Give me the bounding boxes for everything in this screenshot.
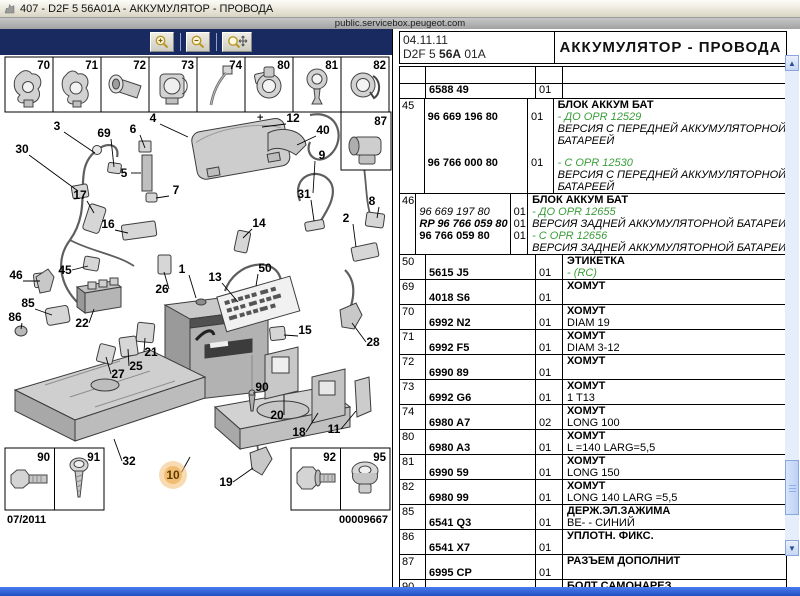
qty-cell: 01	[536, 305, 563, 329]
top-cell-number-80: 80	[277, 60, 290, 72]
plus-terminal-mark: +	[257, 112, 263, 124]
part-cell: 6541 Q3	[426, 505, 536, 529]
ref-cell: 81	[400, 455, 426, 479]
callout-32[interactable]: 32	[122, 454, 136, 468]
top-cell-number-74: 74	[229, 60, 242, 72]
top-cell-number-70: 70	[37, 60, 50, 72]
ref-cell: 73	[400, 380, 426, 404]
table-row[interactable]: 6588 4901	[400, 84, 786, 99]
qty-cell	[536, 67, 563, 83]
table-row[interactable]: 85 6541 Q3 01ДЕРЖ.ЭЛ.ЗАЖИМАBE- - СИНИЙ	[400, 505, 786, 530]
ref-cell: 85	[400, 505, 426, 529]
qty-cell: 01	[536, 455, 563, 479]
desc-cell: ХОМУТ	[563, 280, 786, 304]
diagram-canvas[interactable]: +	[0, 55, 392, 587]
zoom-in-icon	[154, 34, 170, 50]
callout-85[interactable]: 85	[21, 296, 35, 310]
callout-leader-30	[29, 155, 78, 191]
parts-header-code: 04.11.11 D2F 5 56A 01A	[400, 32, 555, 63]
parts-header: 04.11.11 D2F 5 56A 01A АККУМУЛЯТОР - ПРО…	[399, 31, 787, 64]
qty-cell: 01	[536, 280, 563, 304]
callout-leader-50	[256, 274, 258, 286]
callout-6[interactable]: 6	[130, 122, 137, 136]
diagram-panel: +	[0, 55, 392, 587]
callout-19[interactable]: 19	[219, 475, 233, 489]
qty-cell: 01	[536, 480, 563, 504]
inset-91-number: 91	[87, 452, 100, 464]
catalog-date: 04.11.11	[403, 33, 554, 47]
top-cell-number-73: 73	[181, 60, 194, 72]
zoom-out-icon	[190, 34, 206, 50]
callout-27[interactable]: 27	[111, 367, 125, 381]
left-panel-footer-area	[0, 523, 392, 587]
callout-leader-1	[189, 275, 196, 298]
callout-90[interactable]: 90	[255, 380, 269, 394]
top-cell-number-82: 82	[373, 60, 386, 72]
thumb-grip	[789, 491, 796, 492]
part-72-icon	[109, 75, 141, 98]
table-row[interactable]: 45 96 669 196 80 96 766 000 80 01 01 БЛО…	[400, 99, 786, 194]
callout-45[interactable]: 45	[58, 263, 72, 277]
table-row[interactable]	[400, 67, 786, 84]
callout-9[interactable]: 9	[319, 148, 326, 162]
url-text: public.servicebox.peugeot.com	[335, 18, 465, 29]
callout-14[interactable]: 14	[252, 216, 266, 230]
scrollbar-thumb[interactable]	[785, 460, 799, 515]
ref-cell: 82	[400, 480, 426, 504]
qty-cell: 01	[536, 555, 563, 579]
desc-cell: УПЛОТН. ФИКС.	[563, 530, 786, 554]
desc-cell: БЛОК АККУМ БАТ- ДО OPR 12529ВЕРСИЯ С ПЕР…	[554, 99, 786, 193]
parts-scrollbar[interactable]: ▲ ▼	[785, 55, 799, 556]
scrollbar-up-button[interactable]: ▲	[785, 55, 799, 71]
callout-leader-15	[284, 335, 298, 336]
toolbar-separator	[216, 33, 217, 51]
catalog-code: D2F 5 56A 01A	[403, 47, 554, 61]
part-82-icon	[351, 73, 379, 98]
desc-cell: ХОМУТLONG 140 LARG =5,5	[563, 480, 786, 504]
callout-leader-9	[313, 161, 315, 193]
callout-2[interactable]: 2	[343, 211, 350, 225]
peugeot-lion-icon	[3, 2, 16, 15]
ref-cell	[400, 67, 426, 83]
desc-cell	[563, 84, 786, 98]
part-cell: 96 669 197 80RP 96 766 059 8096 766 059 …	[416, 194, 510, 254]
thumb-grip	[789, 488, 796, 489]
callout-3[interactable]: 3	[54, 119, 61, 133]
table-row[interactable]: 71 6992 F5 01ХОМУТDIAM 3-12	[400, 330, 786, 355]
ref-cell	[400, 84, 426, 98]
part-71-icon	[62, 71, 88, 107]
desc-cell: ХОМУТLONG 150	[563, 455, 786, 479]
callout-31[interactable]: 31	[297, 187, 311, 201]
desc-cell	[563, 67, 786, 83]
parts-table-body: 6588 4901 45 96 669 196 80 96 766 000 80…	[399, 66, 787, 588]
callout-10[interactable]: 10	[166, 468, 180, 482]
table-row[interactable]: 87 6995 CP 01РАЗЪЕМ ДОПОЛНИТ	[400, 555, 786, 580]
part-cell: 6992 G6	[426, 380, 536, 404]
callout-22[interactable]: 22	[75, 316, 89, 330]
ref-cell: 45	[400, 99, 425, 193]
callout-4[interactable]: 4	[150, 111, 157, 125]
part-cell: 6992 F5	[426, 330, 536, 354]
ref-cell: 46	[400, 194, 416, 254]
part-cell: 6588 49	[426, 84, 536, 98]
callout-17[interactable]: 17	[73, 188, 87, 202]
callout-7[interactable]: 7	[173, 183, 180, 197]
table-row[interactable]: 86 6541 X7 01УПЛОТН. ФИКС.	[400, 530, 786, 555]
part-cell: 5615 J5	[426, 255, 536, 279]
table-row[interactable]: 81 6990 59 01ХОМУТLONG 150	[400, 455, 786, 480]
toolbar-separator	[180, 33, 181, 51]
callout-leader-28	[352, 323, 366, 342]
part-cell: 6541 X7	[426, 530, 536, 554]
table-row[interactable]: 82 6980 99 01ХОМУТLONG 140 LARG =5,5	[400, 480, 786, 505]
part-cell: 6995 CP	[426, 555, 536, 579]
ref-cell: 69	[400, 280, 426, 304]
table-row[interactable]: 73 6992 G6 01ХОМУТ1 T13	[400, 380, 786, 405]
ref-cell: 50	[400, 255, 426, 279]
part-cell: 6990 59	[426, 455, 536, 479]
qty-cell: 01	[536, 380, 563, 404]
ref-cell: 87	[400, 555, 426, 579]
desc-cell: РАЗЪЕМ ДОПОЛНИТ	[563, 555, 786, 579]
zoom-in-button[interactable]	[150, 32, 174, 52]
window-title: 407 - D2F 5 56A01A - АККУМУЛЯТОР - ПРОВО…	[20, 3, 273, 15]
qty-cell: 02	[536, 405, 563, 429]
desc-cell: БЛОК АККУМ БАТ- ДО OPR 12655ВЕРСИЯ ЗАДНЕ…	[528, 194, 786, 254]
window-titlebar: 407 - D2F 5 56A01A - АККУМУЛЯТОР - ПРОВО…	[0, 0, 800, 18]
callout-8[interactable]: 8	[369, 194, 376, 208]
taskbar[interactable]	[0, 587, 800, 596]
callout-30[interactable]: 30	[15, 142, 29, 156]
desc-cell: ХОМУТ	[563, 355, 786, 379]
inset-92-number: 92	[323, 452, 336, 464]
callout-16[interactable]: 16	[101, 217, 115, 231]
top-cell-number-71: 71	[85, 60, 98, 72]
callout-1[interactable]: 1	[179, 262, 186, 276]
callout-25[interactable]: 25	[129, 359, 143, 373]
ref-cell: 74	[400, 405, 426, 429]
part-81-icon	[307, 69, 327, 104]
callout-21[interactable]: 21	[144, 345, 158, 359]
part-cell: 96 669 196 80 96 766 000 80	[425, 99, 528, 193]
ref-cell: 70	[400, 305, 426, 329]
callout-26[interactable]: 26	[155, 282, 169, 296]
callout-leader-4	[160, 124, 188, 137]
desc-cell: ХОМУТLONG 100	[563, 405, 786, 429]
qty-cell: 01	[536, 505, 563, 529]
table-row[interactable]: 70 6992 N2 01ХОМУТDIAM 19	[400, 305, 786, 330]
qty-cell: 01	[536, 355, 563, 379]
part-cell: 6980 A3	[426, 430, 536, 454]
table-row[interactable]: 69 4018 S6 01ХОМУТ	[400, 280, 786, 305]
parts-panel: 04.11.11 D2F 5 56A 01A АККУМУЛЯТОР - ПРО…	[392, 29, 800, 588]
qty-cell: 01 01	[528, 99, 554, 193]
qty-cell: 01	[536, 430, 563, 454]
callout-leader-31	[311, 200, 314, 221]
callout-46[interactable]: 46	[9, 268, 23, 282]
callout-5[interactable]: 5	[121, 166, 128, 180]
callout-50[interactable]: 50	[258, 261, 272, 275]
part-cell: 6990 89	[426, 355, 536, 379]
callout-15[interactable]: 15	[298, 323, 312, 337]
inset-95-number: 95	[373, 452, 386, 464]
inset-90-number: 90	[37, 452, 50, 464]
part-cell	[426, 67, 536, 83]
callout-13[interactable]: 13	[208, 270, 222, 284]
top-cell-number-72: 72	[133, 60, 146, 72]
desc-cell: ХОМУТL =140 LARG=5,5	[563, 430, 786, 454]
zoom-pan-icon	[226, 34, 248, 50]
top-cell-number-81: 81	[325, 60, 338, 72]
desc-cell: ДЕРЖ.ЭЛ.ЗАЖИМАBE- - СИНИЙ	[563, 505, 786, 529]
callout-12[interactable]: 12	[286, 111, 300, 125]
diagram-toolbar	[0, 29, 392, 55]
callout-28[interactable]: 28	[366, 335, 380, 349]
callout-leader-32	[114, 439, 122, 461]
inset-87-number: 87	[374, 116, 387, 128]
scrollbar-down-button[interactable]: ▼	[785, 540, 799, 556]
desc-cell: ЭТИКЕТКА- (RC)	[563, 255, 786, 279]
zoom-pan-button[interactable]	[222, 32, 252, 52]
callout-leader-19	[233, 468, 253, 482]
table-row[interactable]: 72 6990 89 01ХОМУТ	[400, 355, 786, 380]
table-row[interactable]: 80 6980 A3 01ХОМУТL =140 LARG=5,5	[400, 430, 786, 455]
callout-20[interactable]: 20	[270, 408, 284, 422]
qty-cell: 01	[536, 84, 563, 98]
thumb-grip	[789, 485, 796, 486]
table-row[interactable]: 74 6980 A7 02ХОМУТLONG 100	[400, 405, 786, 430]
callout-leader-2	[353, 224, 356, 247]
qty-cell: 01	[536, 255, 563, 279]
part-cell: 6992 N2	[426, 305, 536, 329]
part-70-icon	[14, 71, 41, 107]
callout-leader-7	[156, 196, 169, 198]
callout-18[interactable]: 18	[292, 425, 306, 439]
desc-cell: ХОМУТDIAM 19	[563, 305, 786, 329]
callout-69[interactable]: 69	[97, 126, 111, 140]
table-row[interactable]: 50 5615 J5 01ЭТИКЕТКА- (RC)	[400, 255, 786, 280]
desc-cell: ХОМУТDIAM 3-12	[563, 330, 786, 354]
callout-86[interactable]: 86	[8, 310, 22, 324]
part-cell: 6980 99	[426, 480, 536, 504]
callout-leader-3	[64, 132, 95, 153]
part-cell: 4018 S6	[426, 280, 536, 304]
zoom-out-button[interactable]	[186, 32, 210, 52]
qty-cell: 010101	[511, 194, 528, 254]
callout-40[interactable]: 40	[316, 123, 330, 137]
parts-header-title: АККУМУЛЯТОР - ПРОВОДА	[555, 32, 786, 63]
qty-cell: 01	[536, 330, 563, 354]
qty-cell: 01	[536, 530, 563, 554]
ref-cell: 86	[400, 530, 426, 554]
callout-11[interactable]: 11	[328, 422, 341, 436]
ref-cell: 80	[400, 430, 426, 454]
desc-cell: ХОМУТ1 T13	[563, 380, 786, 404]
ref-cell: 71	[400, 330, 426, 354]
ref-cell: 72	[400, 355, 426, 379]
part-73-icon	[160, 74, 187, 104]
url-bar: public.servicebox.peugeot.com	[0, 18, 800, 29]
table-row[interactable]: 46 96 669 197 80RP 96 766 059 8096 766 0…	[400, 194, 786, 255]
part-cell: 6980 A7	[426, 405, 536, 429]
